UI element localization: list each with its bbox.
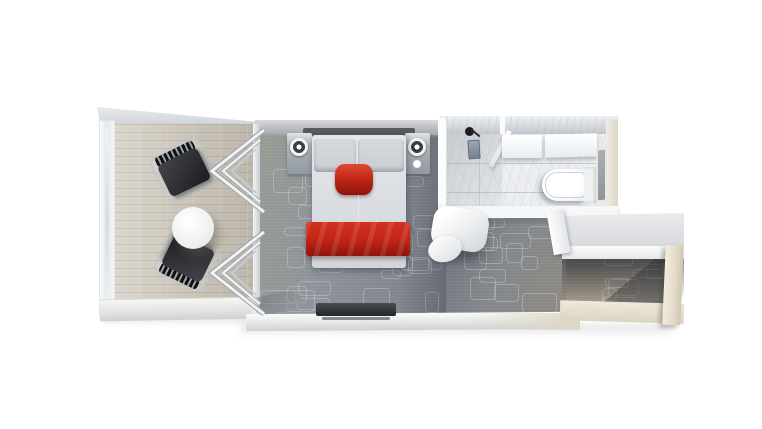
red-bolster-cushion: [335, 164, 373, 195]
bathroom-left-wall: [438, 118, 447, 216]
nightstand-right: [405, 133, 430, 174]
vanity-counter-left: [502, 135, 542, 158]
lamp-icon: [408, 138, 426, 156]
bathroom-right-wall: [606, 120, 618, 216]
tv-console: [316, 303, 396, 316]
shower-control-panel: [467, 140, 480, 160]
toilet-bowl: [542, 169, 588, 201]
mirror: [596, 148, 607, 203]
wardrobe-top: [562, 213, 684, 249]
bed: [312, 135, 406, 268]
entry-door: [662, 245, 683, 326]
balcony-railing: [99, 120, 115, 318]
vanity-counter-right: [545, 133, 597, 157]
red-bed-runner: [306, 222, 410, 256]
duvet-seam: [358, 195, 359, 223]
switch-dot: [413, 160, 421, 168]
lamp-icon: [290, 138, 308, 156]
floorplan-stage: [0, 0, 762, 429]
sliding-door-panels-icon: [200, 124, 272, 320]
nightstand-left: [287, 133, 312, 174]
